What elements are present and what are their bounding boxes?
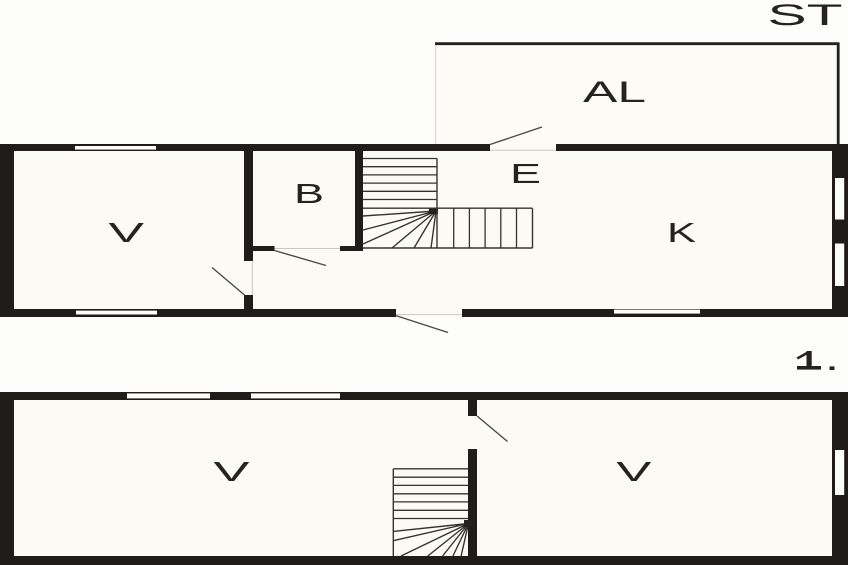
svg-text:ST: ST — [768, 0, 843, 32]
svg-text:AL: AL — [583, 76, 646, 109]
svg-text:V: V — [214, 456, 251, 487]
svg-text:K: K — [667, 217, 697, 248]
svg-text:V: V — [109, 217, 146, 248]
svg-text:B: B — [294, 178, 324, 209]
svg-text:V: V — [616, 456, 652, 487]
svg-text:E: E — [510, 158, 541, 189]
